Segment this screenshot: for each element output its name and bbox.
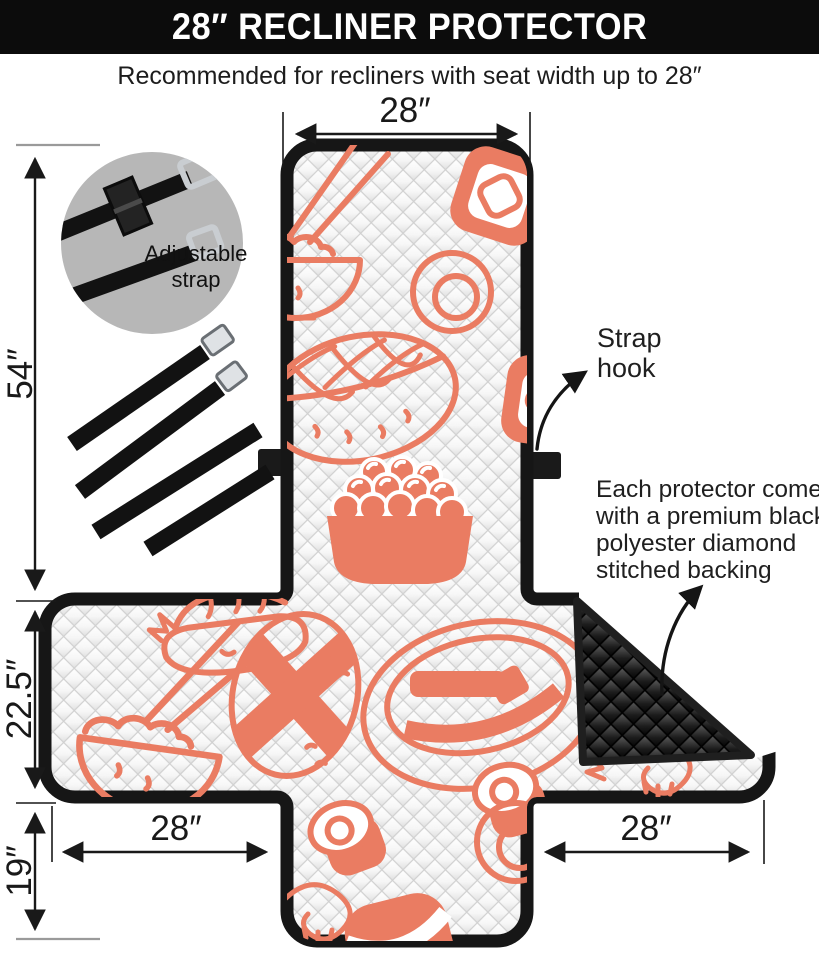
strap-hook-label-line2: hook [597, 353, 656, 383]
dim-back-height-label: 54″ [1, 348, 40, 399]
adjustable-strap-inset: Adjustable strap [50, 152, 247, 334]
backing-note-line2: with a premium black [595, 503, 819, 530]
adjustable-strap-label-line2: strap [172, 267, 221, 292]
strap-hook-callout: Strap hook [537, 323, 662, 449]
recliner-protector-diagram: 28″ 54″ 22.5″ 19″ 28″ [0, 0, 819, 960]
subtitle: Recommended for recliners with seat widt… [0, 62, 819, 91]
dim-top-width-label: 28″ [379, 91, 430, 130]
dimension-bottom-right: 28″ [546, 800, 764, 864]
product-infographic: 28″ RECLINER PROTECTOR Recommended for r… [0, 0, 819, 960]
dim-wing-height-label: 22.5″ [0, 659, 39, 740]
header-bar: 28″ RECLINER PROTECTOR [0, 0, 819, 54]
dimension-front-drop: 19″ [0, 814, 100, 939]
adjustable-strap-label-line1: Adjustable [145, 241, 248, 266]
backing-note-line4: stitched backing [596, 557, 772, 584]
dim-bottom-left-label: 28″ [150, 809, 201, 848]
backing-note-line3: polyester diamond [596, 530, 796, 557]
dimension-bottom-left: 28″ [52, 806, 266, 862]
backing-note-line1: Each protector comes [596, 476, 819, 503]
page-title: 28″ RECLINER PROTECTOR [172, 6, 647, 48]
dim-bottom-right-label: 28″ [620, 809, 671, 848]
strap-hook-arrow [537, 373, 584, 449]
strap-hook-label-line1: Strap [597, 323, 662, 353]
dim-front-drop-label: 19″ [0, 845, 39, 896]
straps-illustration [72, 324, 270, 549]
